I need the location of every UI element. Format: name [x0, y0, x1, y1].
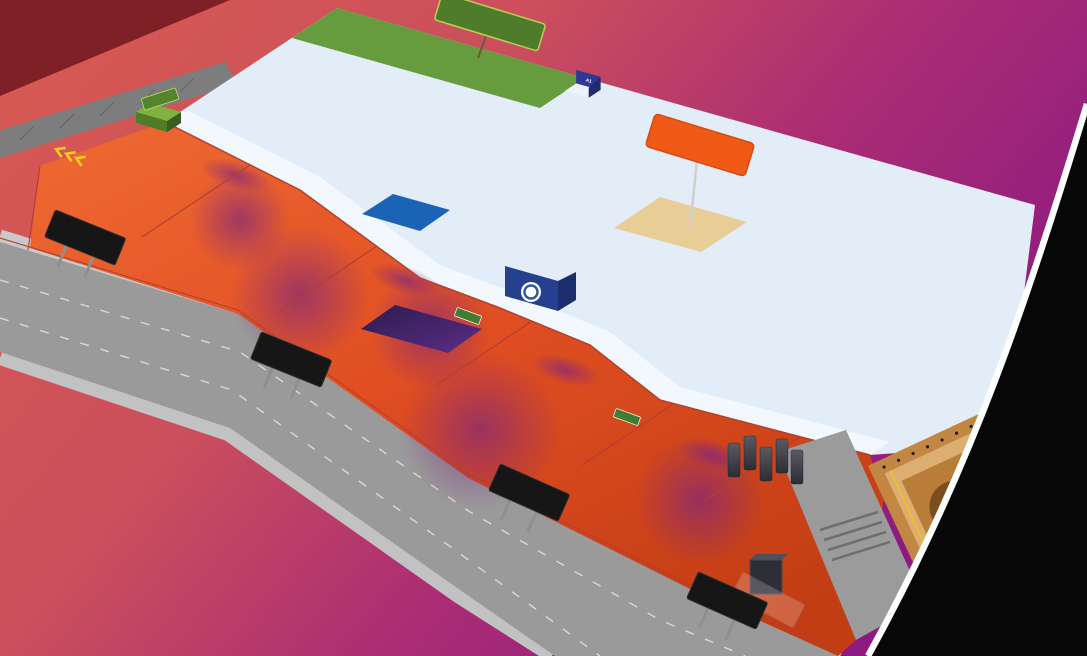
floor-map-canvas: A1: [0, 0, 1087, 656]
large-elevator-top: [750, 554, 788, 560]
venue-map: A1: [0, 0, 1087, 656]
